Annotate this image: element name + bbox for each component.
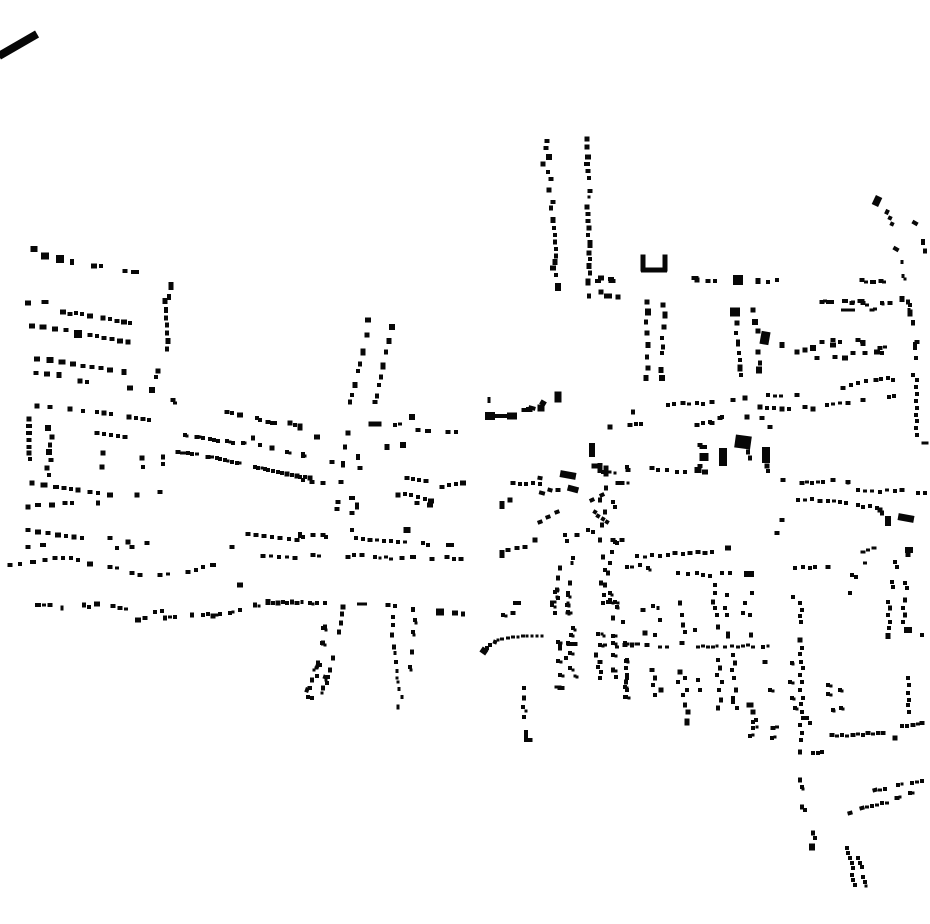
building [687, 403, 691, 406]
building [382, 539, 386, 543]
building [566, 641, 570, 645]
building [206, 612, 210, 616]
building [401, 695, 404, 699]
building [659, 375, 665, 381]
building [563, 533, 567, 537]
building [914, 413, 918, 417]
building [683, 470, 687, 474]
building [546, 154, 552, 160]
building [180, 452, 184, 455]
building [389, 558, 393, 561]
building [551, 217, 556, 223]
building [408, 665, 412, 669]
building [440, 485, 445, 489]
building [768, 425, 773, 429]
building [846, 851, 850, 855]
building [153, 610, 157, 614]
building [134, 416, 138, 420]
building [832, 500, 836, 503]
building [864, 379, 868, 383]
building [56, 255, 64, 263]
building [541, 162, 546, 167]
building [586, 279, 591, 286]
building [799, 738, 803, 742]
building [803, 808, 807, 812]
building [171, 398, 176, 402]
building [723, 646, 727, 649]
building [905, 547, 913, 553]
building [111, 604, 116, 608]
building [558, 686, 565, 690]
building [377, 383, 381, 387]
building [603, 635, 606, 638]
building [556, 596, 559, 599]
building [507, 413, 517, 420]
building [615, 635, 618, 638]
building [343, 445, 347, 450]
building [165, 323, 169, 328]
building [88, 333, 93, 337]
building [770, 736, 774, 740]
building [230, 460, 234, 464]
building [739, 373, 743, 377]
building [555, 283, 561, 291]
building [716, 625, 720, 630]
building [713, 606, 717, 610]
building [427, 503, 433, 508]
building [830, 343, 836, 348]
building [865, 806, 869, 809]
building [861, 301, 866, 305]
building [820, 340, 825, 344]
building [878, 789, 882, 792]
building [87, 605, 91, 609]
building [614, 675, 618, 679]
building [416, 428, 421, 432]
building [792, 682, 795, 685]
building [48, 443, 52, 448]
building [908, 303, 912, 307]
building [266, 599, 271, 605]
building [848, 856, 852, 860]
building [25, 301, 31, 306]
building [719, 448, 727, 466]
building [800, 608, 804, 612]
building [701, 421, 705, 425]
building [190, 613, 194, 618]
building [45, 466, 50, 471]
building [799, 702, 803, 706]
building [405, 476, 410, 480]
building [190, 452, 194, 456]
building [553, 259, 558, 265]
building [685, 719, 690, 726]
building [893, 489, 897, 493]
building [277, 555, 281, 559]
building [95, 334, 99, 338]
building [123, 435, 128, 439]
building [820, 750, 824, 754]
building [454, 430, 458, 434]
building [847, 482, 850, 485]
building [835, 735, 839, 738]
building [163, 298, 168, 304]
building [358, 362, 362, 367]
building [646, 366, 651, 371]
building [445, 555, 450, 559]
building [888, 606, 892, 611]
building [598, 276, 604, 281]
building [325, 679, 328, 682]
building [81, 409, 85, 413]
building [572, 653, 575, 656]
building [346, 555, 351, 559]
building [26, 545, 31, 549]
building [726, 632, 730, 639]
building [321, 481, 326, 485]
building [511, 611, 516, 615]
building [560, 661, 563, 664]
building [666, 553, 670, 557]
building [285, 472, 290, 477]
building [696, 678, 700, 682]
building [301, 535, 305, 539]
building [546, 170, 550, 174]
building [589, 443, 595, 457]
building [78, 379, 83, 384]
building [339, 621, 343, 626]
building [624, 680, 628, 685]
building [830, 300, 834, 304]
building [396, 540, 400, 544]
building [352, 553, 356, 557]
building [126, 540, 131, 545]
building [35, 530, 41, 535]
building [616, 481, 625, 485]
building [27, 438, 32, 442]
building [276, 470, 280, 474]
building [314, 435, 320, 440]
building [238, 608, 242, 612]
building [611, 653, 615, 657]
building [285, 556, 289, 559]
building [558, 673, 562, 677]
building [608, 425, 613, 430]
building [610, 550, 614, 554]
building [870, 490, 874, 493]
building [49, 458, 54, 462]
building [900, 724, 904, 728]
building [397, 705, 400, 710]
building [860, 278, 865, 282]
building [766, 393, 770, 397]
building [906, 691, 910, 695]
building [730, 668, 734, 672]
building [308, 601, 312, 605]
building [266, 420, 271, 424]
building [587, 226, 592, 231]
building [505, 615, 508, 618]
building [410, 669, 413, 672]
building [864, 281, 868, 284]
building [107, 368, 113, 373]
building [536, 635, 539, 638]
building [415, 501, 420, 505]
building [127, 386, 133, 391]
building [61, 556, 65, 560]
building [672, 402, 676, 406]
building [102, 336, 107, 340]
building [301, 478, 305, 482]
building [887, 395, 891, 399]
building [225, 410, 230, 414]
building [70, 501, 74, 505]
building [228, 611, 232, 615]
building [863, 562, 867, 565]
building [568, 581, 572, 586]
building [625, 688, 629, 692]
building [123, 269, 128, 273]
building [52, 327, 58, 332]
building [393, 423, 397, 427]
building [485, 412, 495, 420]
building [878, 346, 883, 350]
building [552, 226, 556, 230]
building [875, 804, 879, 807]
building [681, 401, 686, 405]
building [725, 593, 729, 597]
building [816, 481, 820, 484]
building [29, 324, 35, 329]
building [611, 641, 615, 645]
building [645, 643, 650, 647]
building [661, 303, 666, 308]
building [735, 321, 740, 326]
building [830, 733, 835, 737]
building [91, 264, 97, 269]
building [773, 395, 777, 398]
building [766, 280, 770, 284]
building [842, 299, 848, 303]
building [628, 423, 633, 427]
building [99, 366, 104, 370]
building [508, 498, 513, 503]
building [410, 650, 414, 655]
building [891, 585, 895, 589]
building [354, 536, 358, 540]
building [397, 681, 400, 684]
building [384, 350, 388, 355]
building [879, 377, 883, 381]
building [678, 601, 682, 606]
building [321, 641, 325, 646]
building [920, 633, 924, 637]
building [899, 796, 902, 799]
building [896, 783, 900, 787]
building [565, 539, 569, 543]
building [825, 403, 829, 407]
building [553, 233, 557, 237]
building [63, 501, 68, 505]
building [871, 733, 875, 736]
building [336, 500, 341, 504]
building [31, 246, 38, 252]
building [673, 551, 678, 555]
building [574, 629, 577, 632]
building [40, 325, 47, 330]
building [751, 646, 755, 649]
building [680, 613, 684, 617]
building [158, 490, 163, 494]
building [34, 357, 40, 362]
building [733, 661, 737, 666]
building [659, 367, 664, 373]
building [625, 658, 629, 662]
building [447, 483, 451, 487]
building [914, 399, 918, 403]
building [293, 556, 298, 560]
building [271, 469, 275, 473]
building [701, 402, 705, 406]
building [657, 606, 660, 610]
building [851, 733, 856, 737]
building [261, 554, 266, 558]
building [74, 330, 82, 338]
building [390, 633, 394, 638]
building [901, 620, 905, 624]
building [650, 466, 655, 470]
building [665, 646, 669, 649]
building [798, 778, 802, 783]
building [883, 787, 887, 791]
building [611, 594, 614, 597]
building [313, 669, 316, 672]
building [758, 405, 763, 410]
building [752, 319, 758, 325]
building [809, 844, 815, 851]
building [506, 637, 510, 640]
building [316, 661, 320, 666]
building [730, 645, 734, 648]
building [124, 608, 128, 611]
building [808, 721, 812, 725]
building [888, 301, 893, 305]
building [781, 478, 786, 482]
building [795, 350, 800, 355]
building [602, 593, 606, 597]
building [746, 450, 750, 455]
building [711, 646, 715, 649]
building [913, 342, 917, 350]
building [613, 540, 617, 544]
building [135, 618, 141, 623]
building [868, 504, 872, 508]
building [760, 416, 765, 420]
building [882, 281, 886, 284]
building [874, 378, 879, 382]
building [915, 392, 919, 396]
building [921, 239, 925, 245]
building [738, 365, 743, 372]
building [551, 200, 556, 204]
building [854, 575, 858, 579]
building [572, 669, 575, 672]
building [164, 307, 168, 313]
building [695, 571, 699, 575]
building [693, 628, 697, 632]
building [845, 846, 849, 850]
building [841, 690, 844, 693]
building [826, 683, 830, 687]
building [826, 692, 830, 696]
building [920, 779, 924, 783]
building [173, 402, 177, 405]
building [611, 616, 615, 621]
building [76, 488, 81, 493]
building [706, 279, 711, 283]
building [461, 612, 465, 617]
building [549, 206, 553, 211]
building [138, 573, 143, 577]
building [360, 553, 365, 557]
building [741, 645, 745, 648]
building [326, 675, 330, 679]
building [763, 660, 768, 664]
building [798, 601, 802, 605]
building [833, 710, 836, 713]
building [549, 177, 554, 181]
building [515, 546, 520, 550]
building [915, 378, 919, 382]
building [585, 205, 590, 210]
building [891, 378, 895, 382]
building [890, 580, 894, 584]
building [594, 653, 598, 658]
building [915, 419, 919, 423]
building [772, 406, 776, 410]
building [145, 541, 150, 545]
building [212, 438, 216, 442]
building [244, 442, 247, 445]
building [728, 571, 732, 575]
building [911, 373, 915, 377]
building [695, 423, 700, 427]
building [850, 573, 854, 577]
building [400, 556, 405, 560]
building [101, 451, 106, 456]
building [85, 380, 89, 384]
building [239, 462, 242, 465]
building [585, 145, 590, 150]
building [615, 655, 618, 658]
building [369, 422, 382, 427]
building [109, 433, 113, 437]
building [756, 350, 761, 355]
building [298, 424, 303, 431]
building [161, 455, 165, 460]
building [108, 536, 113, 540]
building [568, 651, 572, 655]
building [758, 361, 762, 366]
building [810, 481, 814, 485]
building [734, 331, 738, 335]
building [639, 422, 643, 426]
building [201, 436, 205, 440]
building [541, 635, 544, 638]
building [598, 676, 602, 680]
building [908, 791, 912, 795]
building [651, 683, 655, 687]
